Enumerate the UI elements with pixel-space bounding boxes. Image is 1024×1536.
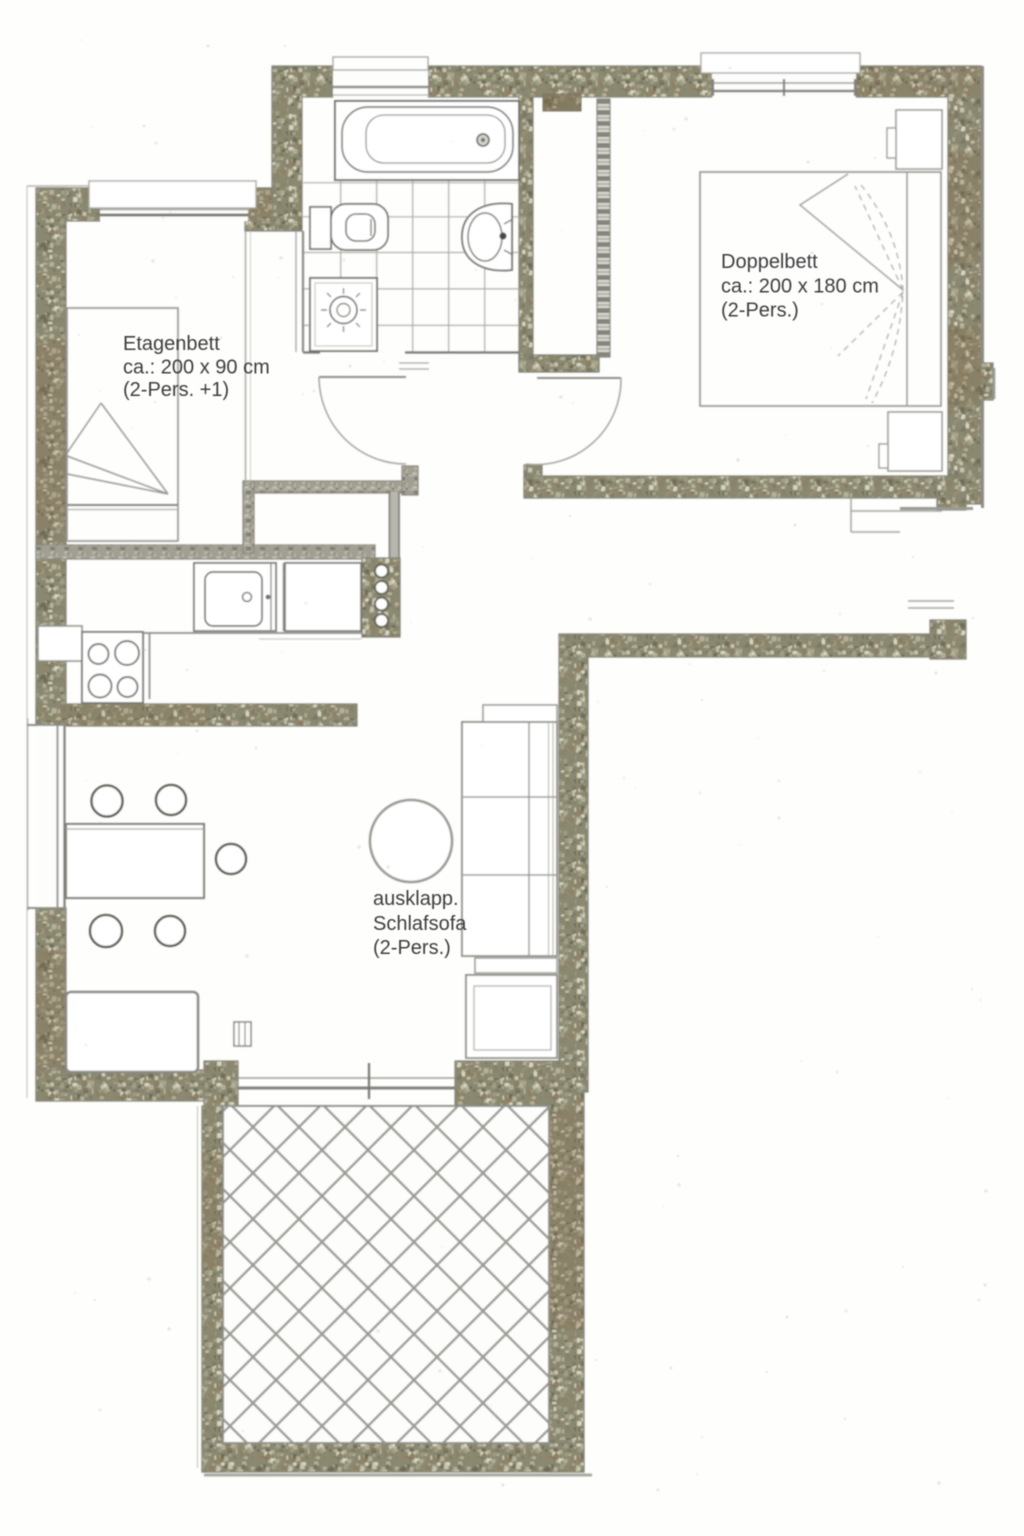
svg-text:ausklapp.: ausklapp. bbox=[373, 888, 459, 910]
svg-text:ca.: 200 x 180 cm: ca.: 200 x 180 cm bbox=[721, 276, 879, 298]
svg-text:ca.: 200 x 90 cm: ca.: 200 x 90 cm bbox=[123, 357, 270, 379]
svg-text:Etagenbett: Etagenbett bbox=[123, 333, 220, 355]
svg-text:(2-Pers. +1): (2-Pers. +1) bbox=[123, 379, 229, 401]
svg-text:Doppelbett: Doppelbett bbox=[721, 251, 818, 273]
svg-text:Schlafsofa: Schlafsofa bbox=[373, 913, 467, 935]
svg-text:(2-Pers.): (2-Pers.) bbox=[721, 300, 799, 322]
svg-text:(2-Pers.): (2-Pers.) bbox=[373, 937, 451, 959]
